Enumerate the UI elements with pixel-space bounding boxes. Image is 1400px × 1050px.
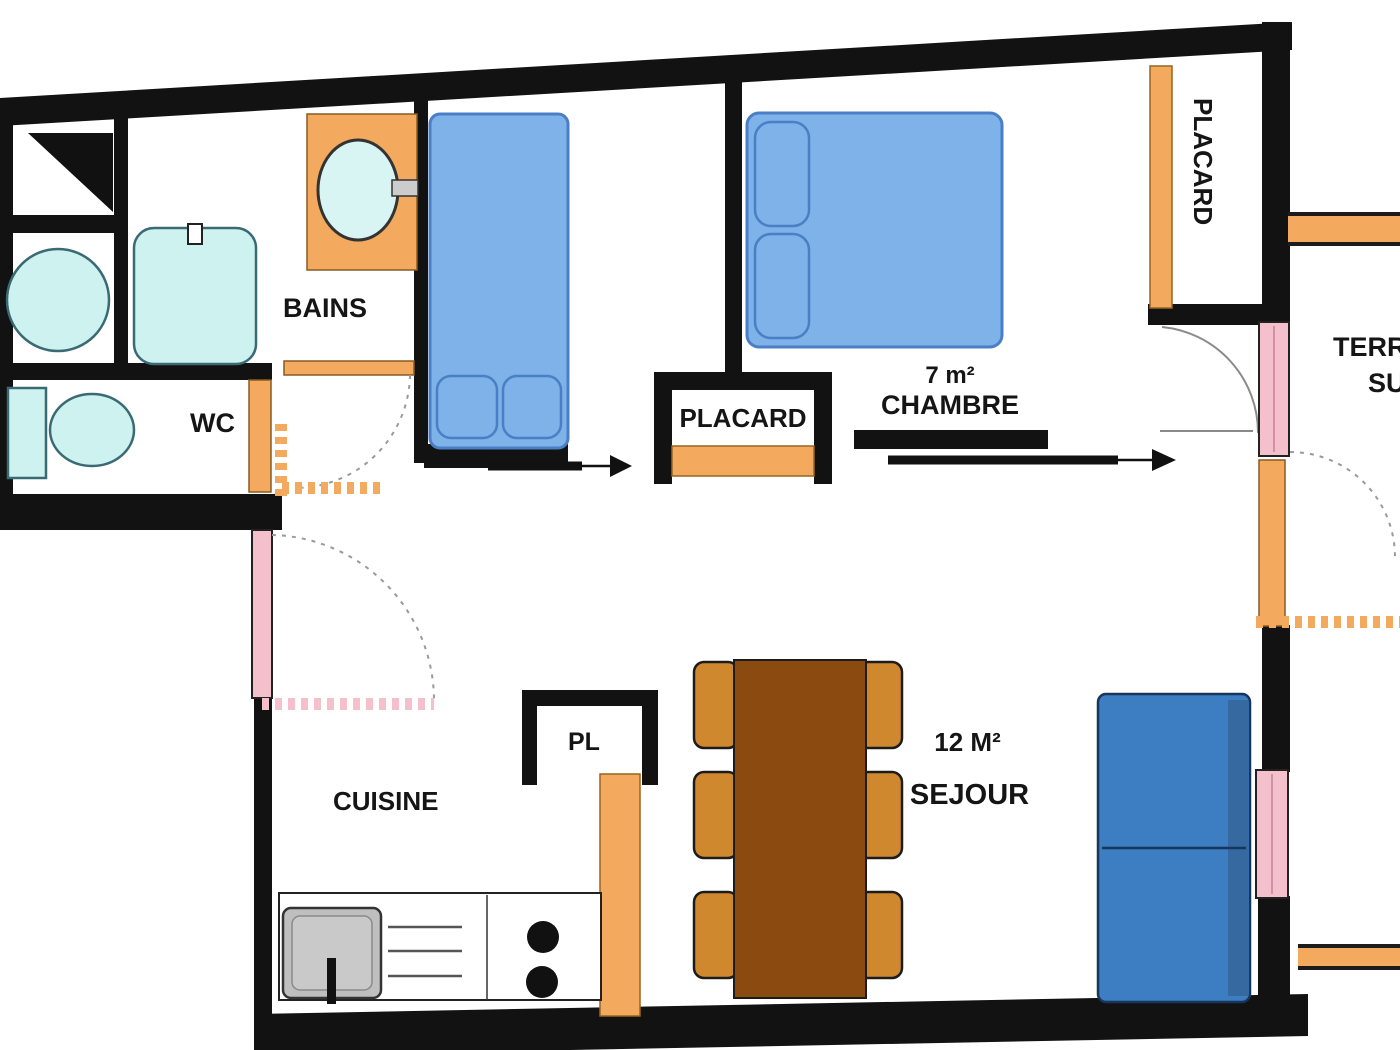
sink-faucet xyxy=(327,958,336,1004)
wall-laundry-horizontal xyxy=(0,215,128,233)
sejour-area-label: 12 M² xyxy=(880,727,1055,758)
cuisine-label: CUISINE xyxy=(333,786,438,817)
chair-left-2 xyxy=(694,772,738,858)
terrace-door-arc xyxy=(1290,452,1395,557)
placard-entry-shelf xyxy=(1150,66,1172,308)
wall-right-middle xyxy=(1262,625,1290,772)
terrace-door xyxy=(1259,460,1285,626)
chambre-area-label: 7 m² xyxy=(855,362,1045,390)
wall-pl-right xyxy=(642,690,658,785)
basin-faucet xyxy=(392,180,418,196)
chair-left-1 xyxy=(694,662,738,748)
pl-label: PL xyxy=(568,728,600,757)
placard-hall-shelf xyxy=(672,446,814,476)
wc-label: WC xyxy=(190,408,235,439)
terrasse-label-line2: SUD xyxy=(1368,368,1400,399)
terrace-railing-bottom xyxy=(1298,948,1400,966)
wall-chambre-south xyxy=(854,430,1048,449)
wall-chambre-west xyxy=(725,80,742,385)
single-bed-pillow-1 xyxy=(437,376,497,438)
chair-left-3 xyxy=(694,892,738,978)
stove-burner-2 xyxy=(526,966,558,998)
placard-hall-label: PLACARD xyxy=(658,403,828,434)
chambre-label: CHAMBRE xyxy=(855,390,1045,421)
shower-tray xyxy=(134,228,256,364)
wall-right-upper xyxy=(1262,22,1290,324)
wall-top xyxy=(0,22,1292,126)
bains-label: BAINS xyxy=(283,293,367,324)
sejour-label: SEJOUR xyxy=(877,779,1062,812)
entrance-door xyxy=(252,530,272,698)
stair-triangle-symbol xyxy=(28,133,113,212)
entrance-door-arc xyxy=(272,535,434,701)
washing-machine xyxy=(7,249,109,351)
terrace-railing-top xyxy=(1288,216,1400,242)
hall-door-arc xyxy=(1162,327,1258,433)
wall-pl-left xyxy=(522,690,537,785)
toilet-tank xyxy=(8,388,46,478)
kitchen-pantry-shelf xyxy=(600,774,640,1016)
single-bed-pillow-2 xyxy=(503,376,561,438)
floor-plan: BAINS WC PLACARD 7 m² CHAMBRE PLACARD TE… xyxy=(0,0,1400,1050)
stove-burner-1 xyxy=(527,921,559,953)
bains-door-leaf xyxy=(284,361,414,375)
placard-entry-label: PLACARD xyxy=(1187,98,1218,225)
wall-wc-top xyxy=(0,363,272,380)
wall-placard-hall-top xyxy=(654,372,832,390)
wall-wc-bottom xyxy=(0,494,282,530)
bains-door-arc xyxy=(295,375,410,488)
toilet-bowl xyxy=(50,394,134,466)
flow-arrow-2 xyxy=(888,449,1176,471)
double-bed-pillow-2 xyxy=(755,234,809,338)
shower-drain xyxy=(188,224,202,244)
washbasin xyxy=(318,140,398,240)
terrasse-label-line1: TERRASSE xyxy=(1333,332,1400,363)
dining-table xyxy=(734,660,866,998)
wall-laundry-divider xyxy=(114,98,128,378)
wc-door xyxy=(249,380,271,492)
wall-kitchen-left xyxy=(254,698,272,1028)
wall-pl-top xyxy=(522,690,658,706)
double-bed-pillow-1 xyxy=(755,122,809,226)
